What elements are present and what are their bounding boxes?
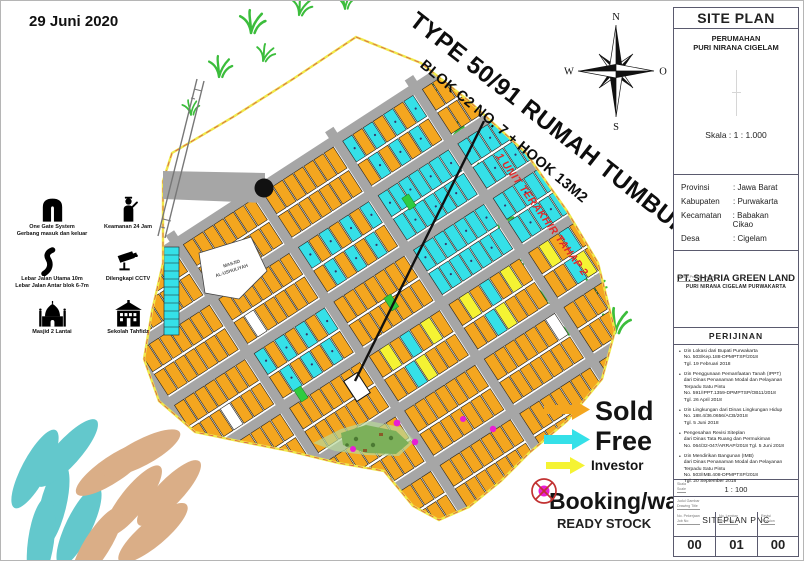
lot [266,495,289,522]
lot [640,285,663,312]
lot [347,553,370,561]
permits-list: •Izin Lokasi dari Bupati PurwakartaNo. 5… [674,345,798,480]
lot [225,477,248,504]
lot [291,556,314,561]
lot [645,360,668,387]
scale-row: Skala Scale 1 : 100 [674,480,798,497]
lot [246,464,269,491]
company-box: Pemilik Proyek / Owner PT. SHARIA GREEN … [674,273,798,328]
lot [620,298,643,325]
lot [615,268,638,295]
lot [210,454,233,481]
lot [406,515,429,542]
lot [595,237,618,264]
lot [306,469,329,496]
lot [661,316,673,343]
lot [322,492,345,519]
compass-north-label: N [612,12,620,23]
lot [371,505,394,532]
lot [235,471,258,498]
revision-cell: RevisiRevision 00 [758,512,798,556]
legend: Sold Free Investor [544,396,654,474]
lot [230,441,253,468]
lot [386,528,409,555]
company-small-label: Pemilik Proyek / Owner [677,275,714,282]
lot [255,502,278,529]
lot [245,508,268,535]
security-guard-icon [114,195,143,224]
lot [332,530,355,557]
mosque-icon [38,300,67,329]
lot [605,231,628,258]
panel-title: SITE PLAN [674,8,798,29]
compass-south-label: S [613,122,619,133]
lot [620,343,643,370]
sheet-no-cell: No. LembarSheet No 01 [716,512,758,556]
permit-item: •Izin Lingkungan dari Dinas Lingkungan H… [679,408,794,427]
location-row: Kecamatan : Babakan Cikao [681,211,791,229]
school-icon [114,300,143,329]
permit-item: •Izin Penggunaan Pemanfaatan Tanah (IPPT… [679,372,794,404]
lot [605,275,628,302]
location-row: Desa : Cigelam [681,234,791,243]
permit-item: •Pengesahan Revisi Siteplandari Dinas Ta… [679,431,794,450]
feature-cctv: Dilengkapi CCTV [91,247,165,290]
lot [281,519,304,546]
feature-school: Sekolah Tahfidz [91,300,165,336]
job-no-cell: No. PekerjaanJob No 00 [674,512,716,556]
lot [271,525,294,552]
lot [610,349,633,376]
lot [590,207,613,234]
lot [630,292,653,319]
permit-item: •Izin Lokasi dari Bupati PurwakartaNo. 5… [679,349,794,368]
north-mark [736,70,737,116]
project-line2: PURI NIRANA CIGELAM [674,43,798,52]
lot [321,536,344,561]
lot [342,523,365,550]
legend-investor-arrow [546,457,585,474]
job-no-value: 00 [674,537,715,552]
gate-icon [38,195,67,224]
lot [350,473,373,500]
lot [396,521,419,548]
lot [261,532,284,559]
feature-road-width: Lebar Jalan Utama 10m Lebar Jalan Antar … [15,247,89,290]
legend-investor-label: Investor [591,458,644,473]
lot [357,547,380,561]
booking-legend: Booking/waad READY STOCK [532,479,673,561]
lot [301,550,324,561]
lot [340,480,363,507]
lot [256,457,279,484]
ready-stock-label: READY STOCK [557,516,652,531]
project-line1: PERUMAHAN [674,34,798,43]
compass-west-label: W [564,67,574,78]
lot [360,511,383,538]
road-curve-icon [38,247,67,276]
lot [296,475,319,502]
lot [276,489,299,516]
booking-label: Booking/waad [549,488,673,514]
roundabout [255,179,274,198]
lot [381,498,404,525]
legend-free-label: Free [595,426,652,456]
project-box: PERUMAHAN PURI NIRANA CIGELAM Skala : 1 … [674,29,798,175]
scale-note: Skala : 1 : 1.000 [674,130,798,140]
location-box: Provinsi : Jawa Barat Kabupaten : Purwak… [674,175,798,251]
lot [291,512,314,539]
lot [301,505,324,532]
date-label: 29 Juni 2020 [29,13,118,30]
sheet-no-value: 01 [716,537,757,552]
lot [311,543,334,561]
lot [655,353,673,380]
access-road [163,171,274,203]
lot [650,323,673,350]
location-row: Provinsi : Jawa Barat [681,183,791,192]
lot [630,336,653,363]
feature-security: Keamanan 24 Jam [91,195,165,238]
lot [640,329,663,356]
lot [625,262,648,289]
lot [286,482,309,509]
feature-list: One Gate System Gerbang masuk dan keluar… [15,195,167,336]
lot [635,366,658,393]
footer-cells: No. PekerjaanJob No 00 No. LembarSheet N… [674,512,798,556]
company-subtitle: PURI NIRANA CIGELAM PURWAKARTA [674,284,798,290]
compass-rose-icon: N S W O [564,12,667,133]
location-row: Kabupaten : Purwakarta [681,197,791,206]
lot [266,451,289,478]
scale-value: 1 : 100 [674,485,798,494]
lot [220,447,243,474]
lot [376,535,399,561]
feature-mosque: Masjid 2 Lantai [15,300,89,336]
legend-sold-label: Sold [595,396,654,426]
leaf-decoration [3,412,209,561]
permits-title: PERIJINAN [674,328,798,345]
siteplan-page: MASJID AL-USHULIYAH [0,0,804,561]
compass-east-label: O [659,67,667,78]
title-block-panel: SITE PLAN PERUMAHAN PURI NIRANA CIGELAM … [673,7,799,557]
feature-one-gate: One Gate System Gerbang masuk dan keluar [15,195,89,238]
lot [666,346,673,373]
cctv-icon [114,247,143,276]
revision-value: 00 [758,537,798,552]
lot [311,499,334,526]
